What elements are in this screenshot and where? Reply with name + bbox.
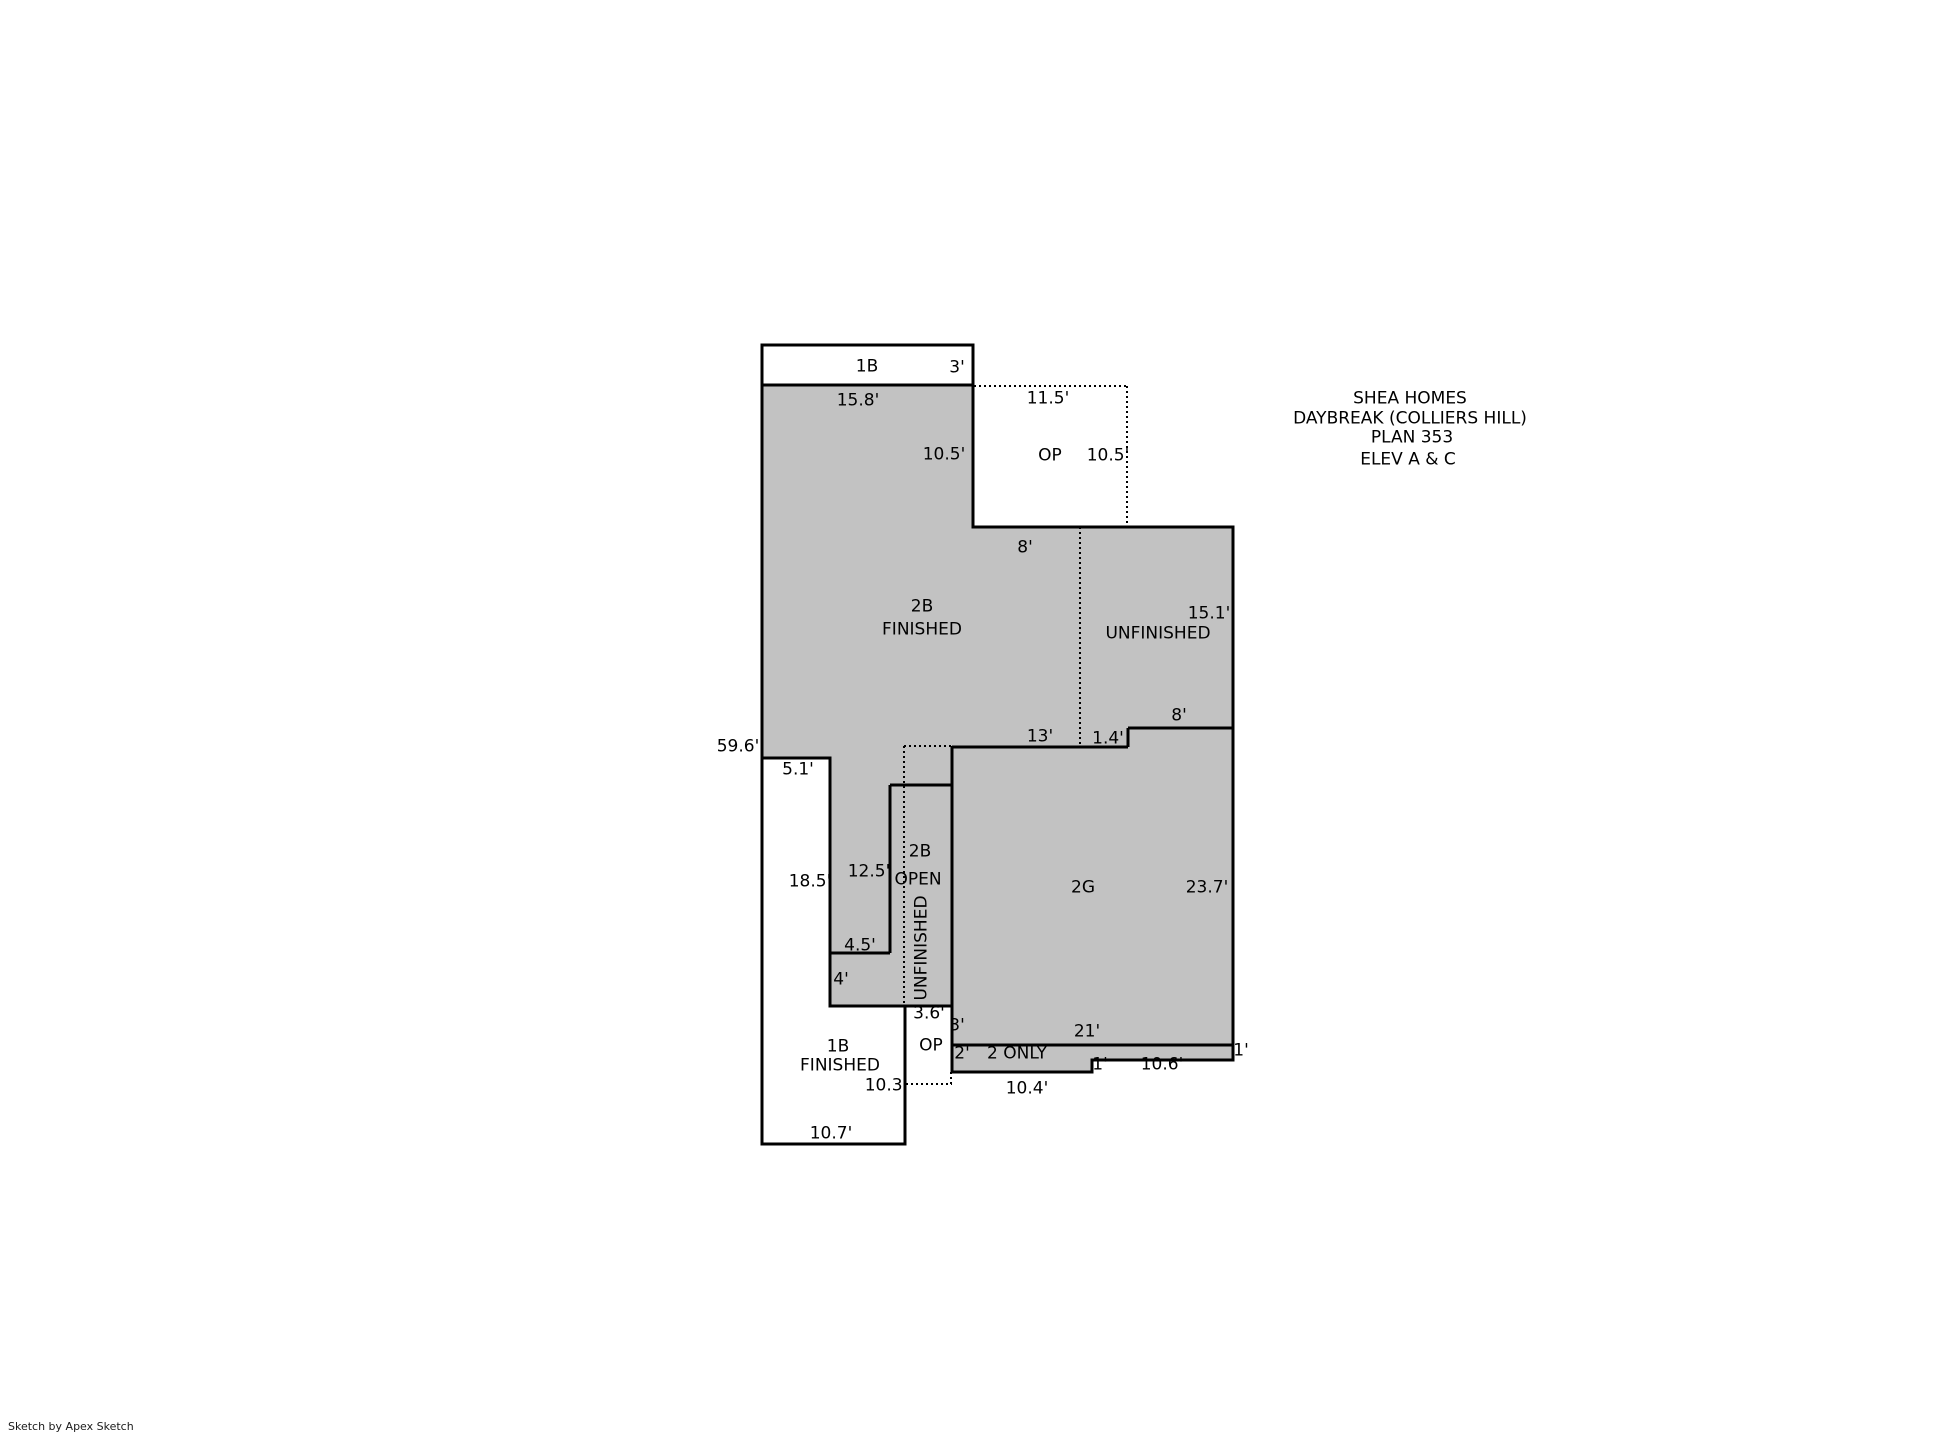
open-area-step-height-dim: 4'	[833, 972, 849, 989]
first-floor-bottom-width-dim: 10.7'	[810, 1126, 853, 1143]
first-floor-top-notch-dim: 5.1'	[782, 762, 814, 779]
left-wall-total-dim: 59.6'	[717, 739, 760, 756]
title-builder: SHEA HOMES	[1353, 391, 1467, 408]
unfinished-right-height-dim: 15.1'	[1188, 606, 1231, 623]
unfinished-step-drop-dim: 1.4'	[1092, 731, 1124, 748]
porch-lower-top-width-dim: 3.6'	[913, 1006, 945, 1023]
first-floor-right-height-dim: 18.5'	[789, 874, 832, 891]
open-area-status-label: UNFINISHED	[914, 895, 931, 1000]
open-area-label: OPEN	[894, 872, 941, 889]
garage-bottom-width-dim: 21'	[1074, 1024, 1100, 1041]
open-area-code-label: 2B	[909, 844, 931, 861]
first-floor-code-label: 1B	[827, 1039, 849, 1056]
floor-plan-page: 1B 3' 15.8' 11.5' 10.5' OP 10.5' 8' 2B F…	[0, 0, 1958, 1436]
porch-upper-left-height-dim: 10.5'	[923, 447, 966, 464]
porch-upper-top-width-dim: 11.5'	[1027, 391, 1070, 408]
unfinished-step-width-dim: 8'	[1171, 708, 1187, 725]
strip-right-width-dim: 10.6'	[1141, 1057, 1184, 1074]
title-community: DAYBREAK (COLLIERS HILL)	[1293, 411, 1527, 428]
garage-code-label: 2G	[1071, 880, 1095, 897]
porch-upper-code-label: OP	[1038, 448, 1062, 465]
second-floor-code-label: 2B	[911, 599, 933, 616]
porch-upper-right-height-dim: 10.5'	[1087, 448, 1130, 465]
strip-label: 2 ONLY	[987, 1046, 1047, 1063]
upper-strip-height-dim: 3'	[949, 360, 965, 377]
first-floor-status-label: FINISHED	[800, 1058, 880, 1075]
porch-lower-code-label: OP	[919, 1038, 943, 1055]
open-area-left-height-dim: 12.5'	[848, 864, 891, 881]
strip-left-height-dim: 2'	[954, 1046, 970, 1063]
porch-lower-right-height-dim: 3'	[949, 1018, 965, 1035]
floor-plan-canvas	[0, 0, 1958, 1436]
title-elevation: ELEV A & C	[1360, 452, 1456, 469]
second-floor-status-label: FINISHED	[882, 622, 962, 639]
upper-strip-code-label: 1B	[856, 359, 878, 376]
unfinished-top-width-dim: 13'	[1027, 729, 1053, 746]
strip-left-width-dim: 10.4'	[1006, 1081, 1049, 1098]
open-area-step-width-dim: 4.5'	[844, 938, 876, 955]
main-top-width-dim: 15.8'	[837, 393, 880, 410]
second-floor-top-segment-dim: 8'	[1017, 540, 1033, 557]
first-floor-lower-right-wall-dim: 10.3'	[865, 1078, 908, 1095]
garage-right-height-dim: 23.7'	[1186, 880, 1229, 897]
strip-step-dim: 1'	[1092, 1057, 1108, 1074]
strip-right-height-dim: 1'	[1233, 1043, 1249, 1060]
unfinished-status-label: UNFINISHED	[1105, 626, 1210, 643]
title-plan: PLAN 353	[1371, 430, 1453, 447]
sketch-credit: Sketch by Apex Sketch	[8, 1420, 134, 1433]
